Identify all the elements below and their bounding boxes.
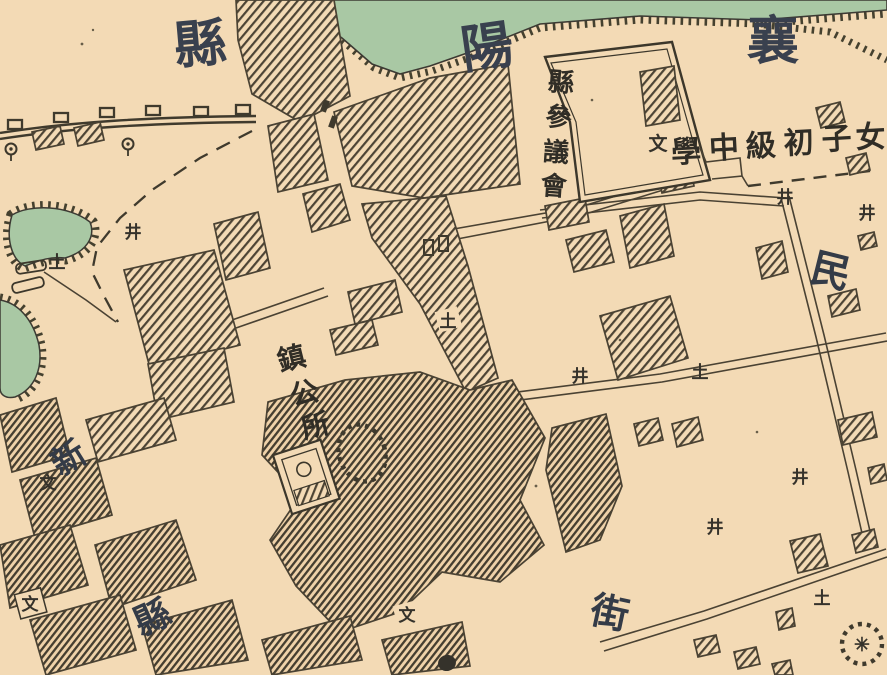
county-council-char: 會 — [540, 170, 569, 202]
place-name-char-yang: 陽 — [457, 16, 517, 81]
girls-school-char: 級 — [745, 128, 777, 164]
map-viewport: 土 土 土 土 井 井 井 井 井 井 文 文 文 文 ✳ 襄 陽 縣 縣 參 … — [0, 0, 887, 675]
map-canvas[interactable]: 土 土 土 土 井 井 井 井 井 井 文 文 文 文 ✳ 襄 陽 縣 縣 參 … — [0, 0, 887, 675]
well-marker: 井 — [777, 187, 794, 207]
well-marker: 井 — [792, 467, 809, 487]
school-marker: 文 — [40, 473, 58, 493]
girls-school-char: 女 — [855, 119, 887, 155]
building-block — [858, 232, 877, 250]
building-block — [620, 204, 674, 268]
building-block — [694, 635, 720, 657]
shrine-star-marker: ✳ — [854, 635, 870, 656]
county-council-char: 縣 — [547, 66, 575, 98]
building-block — [868, 464, 887, 484]
school-marker: 文 — [648, 132, 668, 155]
building-block — [634, 418, 663, 446]
well-marker: 井 — [572, 366, 589, 386]
pole-marker-dot — [126, 142, 129, 145]
well-marker: 井 — [707, 517, 724, 537]
earth-mound-marker: 土 — [440, 311, 457, 331]
place-name-char-xian: 縣 — [172, 14, 229, 76]
building-block — [640, 66, 680, 126]
well-marker: 井 — [859, 203, 876, 223]
place-name-char-xiang: 襄 — [747, 13, 799, 71]
building-block — [776, 608, 795, 630]
girls-school-char: 中 — [708, 131, 740, 166]
building-block — [756, 241, 788, 279]
speckle — [92, 29, 94, 31]
speckle — [81, 43, 84, 46]
girls-school-char: 學 — [670, 135, 702, 170]
well-marker: 井 — [125, 222, 142, 242]
speckle — [756, 431, 759, 434]
speckle — [535, 485, 538, 488]
earth-mound-marker: 土 — [814, 588, 831, 608]
school-marker: 文 — [22, 594, 40, 614]
building-block — [846, 153, 870, 175]
girls-school-char: 子 — [821, 122, 853, 157]
building-block — [734, 647, 760, 669]
county-council-char: 議 — [542, 136, 570, 168]
earth-mound-marker: 土 — [49, 252, 66, 272]
county-council-char: 參 — [545, 101, 574, 133]
speckle — [619, 339, 622, 342]
school-marker: 文 — [399, 605, 417, 625]
pole-marker-dot — [9, 147, 12, 150]
girls-school-char: 初 — [783, 126, 815, 161]
speckle — [591, 99, 594, 102]
earth-mound-marker: 土 — [692, 362, 709, 382]
building-block — [790, 534, 828, 573]
